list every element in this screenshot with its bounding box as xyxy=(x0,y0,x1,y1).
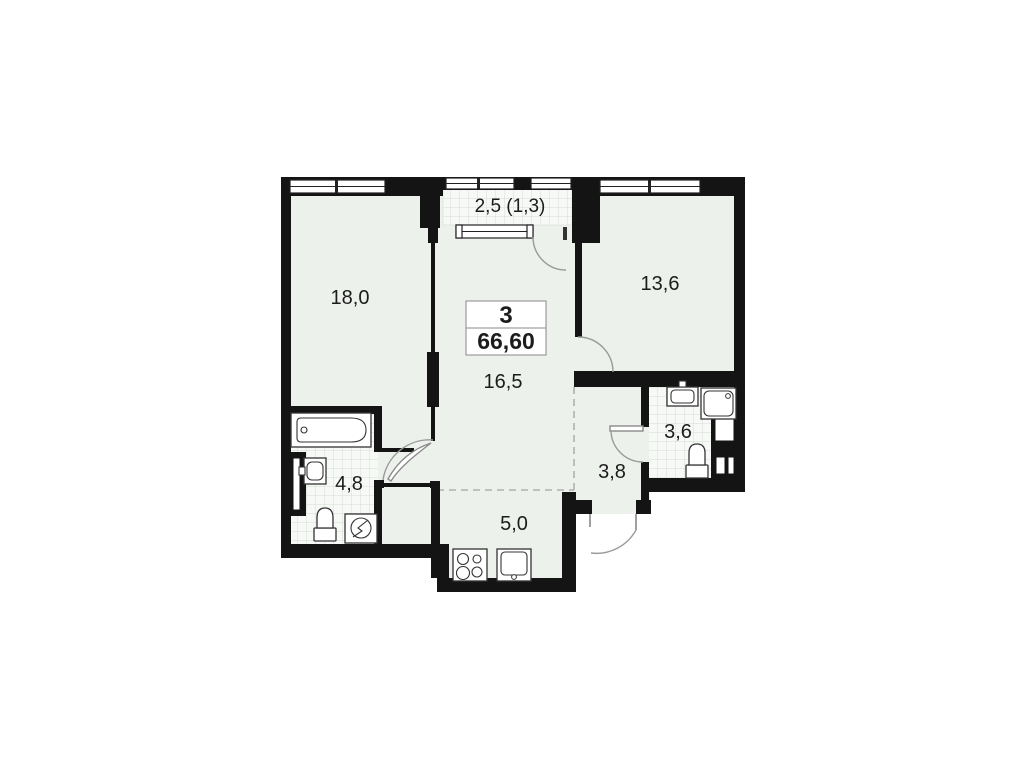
floor-plan: 3 66,60 18,0 2,5 (1,3) 13,6 16,5 4,8 3,6… xyxy=(0,0,1024,768)
balcony-sill-window xyxy=(456,225,533,238)
unit-rooms-count: 3 xyxy=(499,302,512,329)
wc-shaft-slot-2 xyxy=(716,457,725,474)
pillar-balcony-left xyxy=(420,177,440,228)
bedroom-window xyxy=(600,180,700,193)
floor-plan-page: 3 66,60 18,0 2,5 (1,3) 13,6 16,5 4,8 3,6… xyxy=(0,0,1024,768)
bathroom-shaft-slot xyxy=(293,458,300,510)
wall-entry-left xyxy=(574,500,592,514)
entrance-door xyxy=(590,514,636,553)
bathtub xyxy=(291,413,371,447)
label-bathroom: 4,8 xyxy=(335,473,363,495)
label-bedroom: 13,6 xyxy=(641,273,680,295)
wall-entry-right xyxy=(636,500,651,514)
wall-bedroom-left xyxy=(575,242,582,337)
wc-toilet xyxy=(686,444,708,478)
wall-living-thin1 xyxy=(431,243,435,352)
shower-tray xyxy=(701,388,736,419)
label-wc: 3,6 xyxy=(664,421,692,443)
entrance-door-arc xyxy=(591,530,636,553)
label-balcony: 2,5 (1,3) xyxy=(475,196,546,217)
balcony-window-right xyxy=(531,178,571,189)
wall-bathroom-right-upper xyxy=(374,408,382,452)
wall-kitchen-right xyxy=(562,492,576,592)
wall-living-upper xyxy=(428,228,438,243)
wc-shaft-slot-3 xyxy=(728,457,734,474)
wall-bedroom-bottom xyxy=(574,371,740,387)
living-room-window xyxy=(290,180,385,193)
wc-shaft-slot xyxy=(715,419,734,441)
label-hall: 16,5 xyxy=(484,371,523,393)
wall-nook-bottom-cap xyxy=(374,480,384,488)
wall-nook-top-thin xyxy=(376,448,414,452)
kitchen-sink xyxy=(497,549,531,581)
unit-total-area: 66,60 xyxy=(477,328,535,354)
pillar-balcony-right xyxy=(572,177,600,243)
label-corridor: 3,8 xyxy=(598,461,626,483)
unit-info-box: 3 66,60 xyxy=(466,301,546,355)
wall-kitchen-left xyxy=(431,485,440,578)
wall-living-thin2 xyxy=(431,407,435,441)
wall-nook-bottom-thin xyxy=(378,483,438,487)
wall-bottom-left xyxy=(281,544,449,558)
wc-door-leaf xyxy=(610,426,643,431)
washing-machine xyxy=(345,514,377,543)
balcony-door-jamb xyxy=(563,227,567,240)
kitchen-stove xyxy=(453,549,487,581)
wall-living-pillar xyxy=(427,352,439,407)
label-kitchen: 5,0 xyxy=(500,513,528,535)
balcony-window-left xyxy=(446,178,514,189)
label-living-room: 18,0 xyxy=(331,287,370,309)
wall-wc-left-upper xyxy=(641,387,649,427)
toilet xyxy=(314,508,336,541)
wall-wc-bottom xyxy=(641,478,745,492)
